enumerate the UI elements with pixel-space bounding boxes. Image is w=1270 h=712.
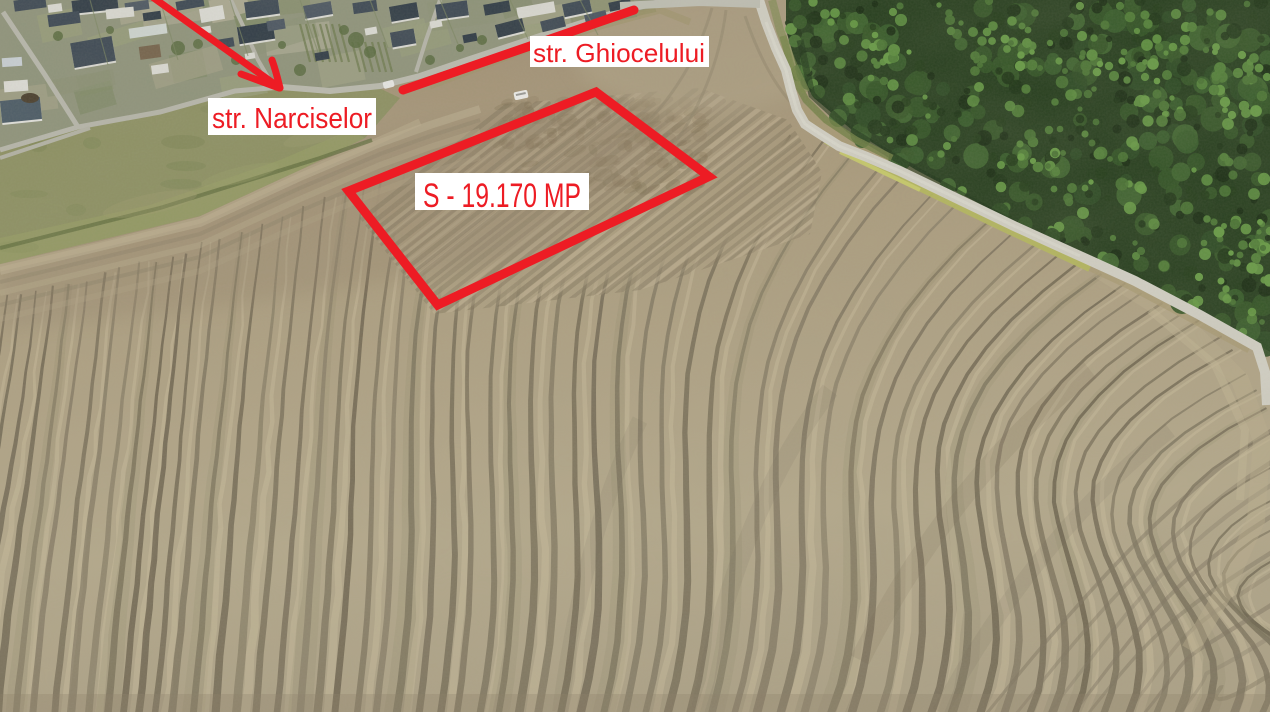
svg-text:str. Narciselor: str. Narciselor	[212, 103, 372, 135]
svg-text:str. Ghiocelului: str. Ghiocelului	[533, 38, 705, 68]
svg-text:S - 19.170 MP: S - 19.170 MP	[423, 177, 581, 215]
